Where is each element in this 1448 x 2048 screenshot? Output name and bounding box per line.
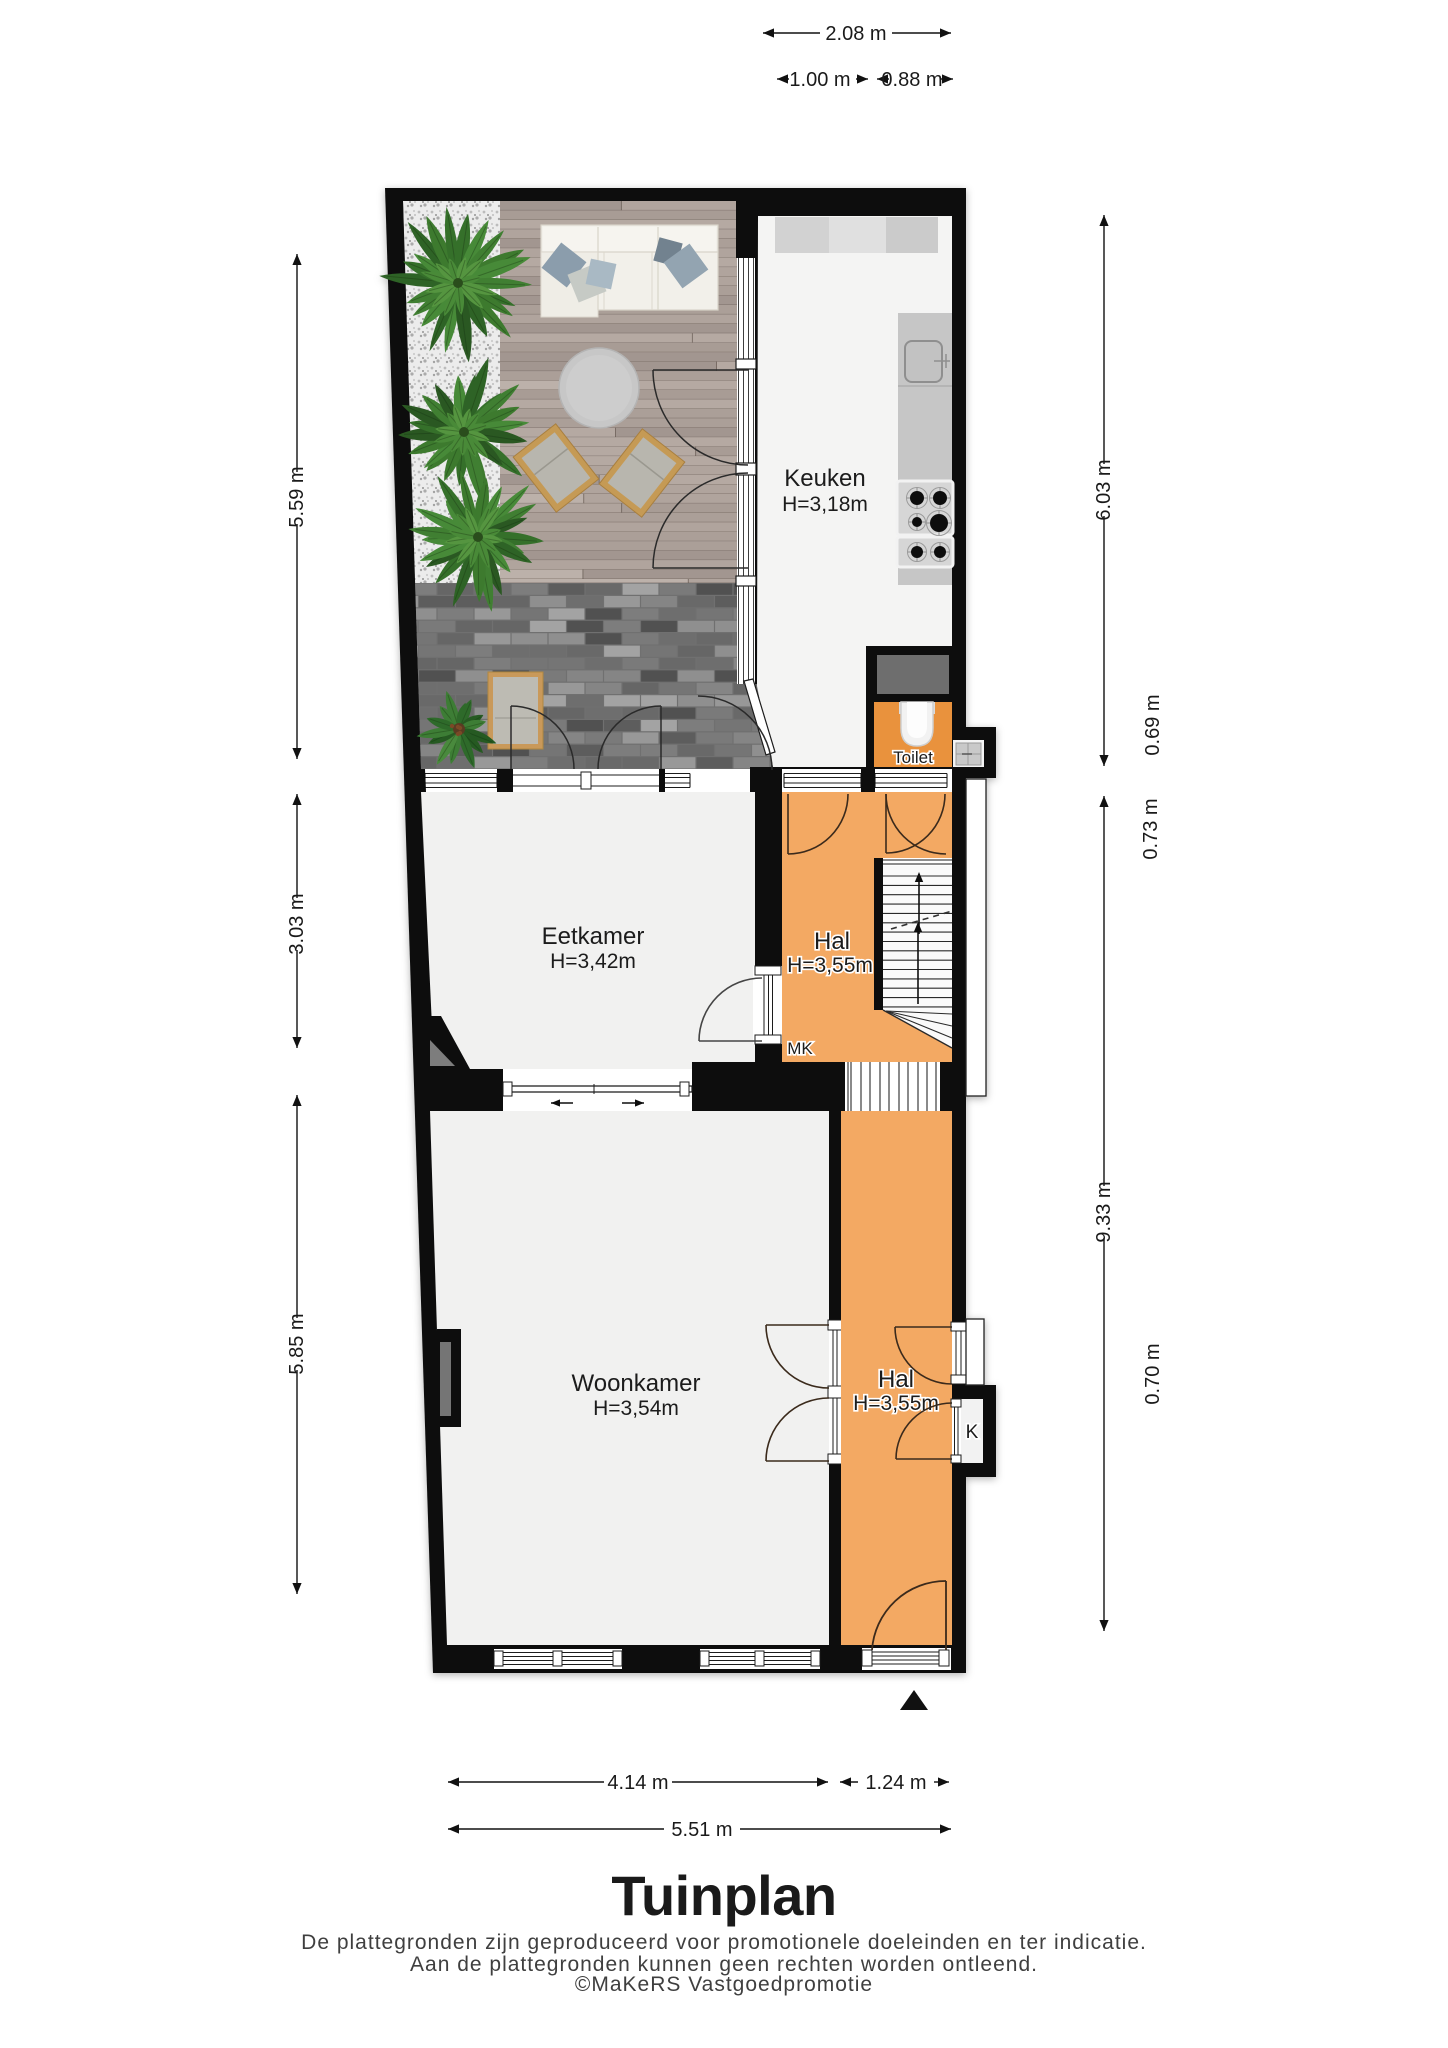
svg-text:Eetkamer: Eetkamer [542,923,645,950]
svg-text:Hal: Hal [878,1366,914,1393]
svg-text:6.03 m: 6.03 m [1093,459,1115,520]
svg-text:Toilet: Toilet [893,748,933,767]
svg-text:0.73 m: 0.73 m [1140,798,1162,859]
svg-text:Woonkamer: Woonkamer [572,1370,701,1397]
svg-text:0.88 m: 0.88 m [881,69,942,91]
svg-text:Keuken: Keuken [784,465,865,492]
svg-text:1.24 m: 1.24 m [865,1772,926,1794]
svg-text:K: K [966,1422,979,1443]
svg-text:Hal: Hal [814,928,850,955]
svg-text:1.00 m: 1.00 m [789,69,850,91]
svg-text:0.69 m: 0.69 m [1142,694,1164,755]
svg-text:H=3,55m: H=3,55m [787,954,873,977]
svg-text:5.59 m: 5.59 m [286,466,308,527]
svg-text:H=3,18m: H=3,18m [782,493,868,516]
svg-text:0.70 m: 0.70 m [1142,1343,1164,1404]
svg-text:©MaKeRS Vastgoedpromotie: ©MaKeRS Vastgoedpromotie [575,1973,873,1996]
svg-text:3.03 m: 3.03 m [286,893,308,954]
svg-text:H=3,55m: H=3,55m [853,1392,939,1415]
svg-text:Tuinplan: Tuinplan [611,1864,836,1927]
svg-text:4.14 m: 4.14 m [607,1772,668,1794]
svg-text:9.33 m: 9.33 m [1093,1181,1115,1242]
svg-text:De plattegronden zijn geproduc: De plattegronden zijn geproduceerd voor … [301,1931,1147,1954]
svg-text:H=3,54m: H=3,54m [593,1397,679,1420]
svg-text:2.08 m: 2.08 m [825,23,886,45]
svg-text:MK: MK [787,1039,813,1058]
svg-text:5.85 m: 5.85 m [286,1313,308,1374]
svg-text:H=3,42m: H=3,42m [550,950,636,973]
svg-text:5.51 m: 5.51 m [671,1819,732,1841]
